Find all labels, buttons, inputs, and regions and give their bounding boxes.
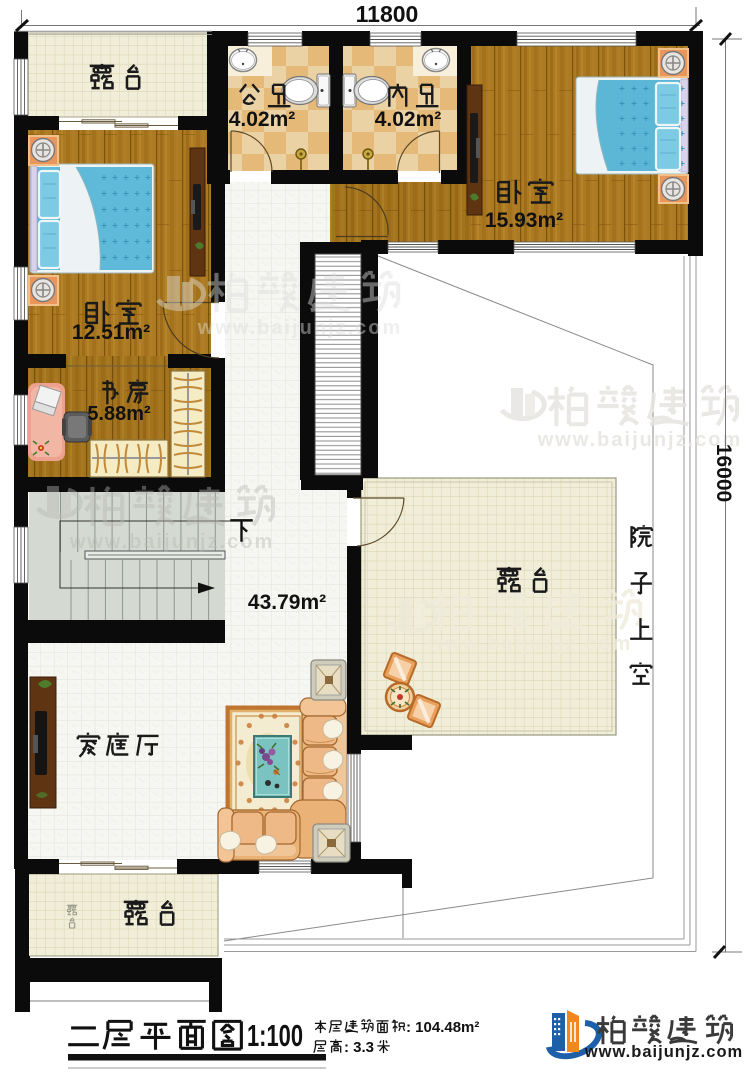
svg-text:: 104.48m²: : 104.48m² <box>406 1019 479 1036</box>
svg-text:4.02m²: 4.02m² <box>375 108 442 131</box>
svg-text:www.baijunjz.com: www.baijunjz.com <box>69 531 275 553</box>
svg-text:www.baijunjz.com: www.baijunjz.com <box>537 429 743 451</box>
svg-text:: 3.3: : 3.3 <box>344 1039 374 1056</box>
svg-text:11800: 11800 <box>356 1 419 27</box>
svg-text:www.baijunjz.com: www.baijunjz.com <box>197 317 403 339</box>
svg-text:43.79m²: 43.79m² <box>248 591 326 614</box>
svg-text:16000: 16000 <box>712 444 735 502</box>
svg-text:15.93m²: 15.93m² <box>485 209 563 232</box>
svg-text:www.baijunjz.com: www.baijunjz.com <box>584 1043 743 1061</box>
svg-text:4.02m²: 4.02m² <box>229 108 296 131</box>
svg-text:www.baijunjz.com: www.baijunjz.com <box>427 633 633 655</box>
svg-text:1:100: 1:100 <box>247 1018 303 1053</box>
svg-text:12.51m²: 12.51m² <box>72 321 150 344</box>
svg-text:5.88m²: 5.88m² <box>87 403 151 425</box>
